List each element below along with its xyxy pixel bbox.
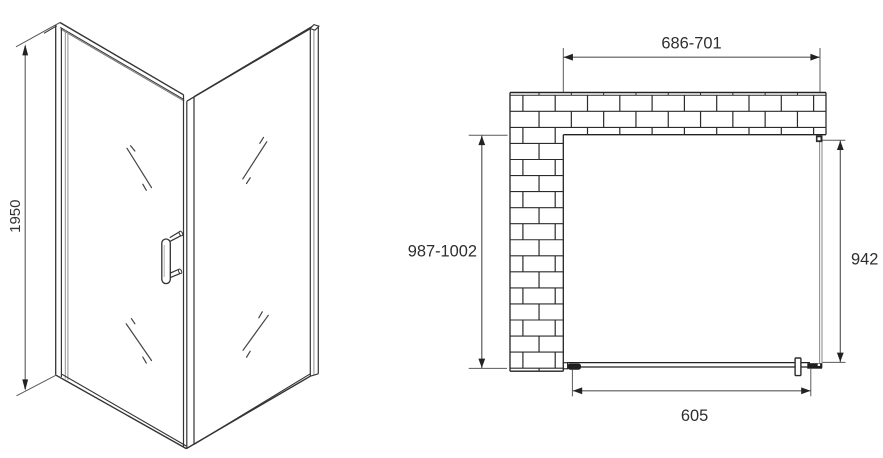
svg-text:987-1002: 987-1002 <box>408 243 477 261</box>
svg-text:942: 942 <box>851 250 878 268</box>
svg-text:605: 605 <box>681 407 708 425</box>
svg-text:686-701: 686-701 <box>661 35 721 53</box>
svg-text:1950: 1950 <box>7 200 24 233</box>
